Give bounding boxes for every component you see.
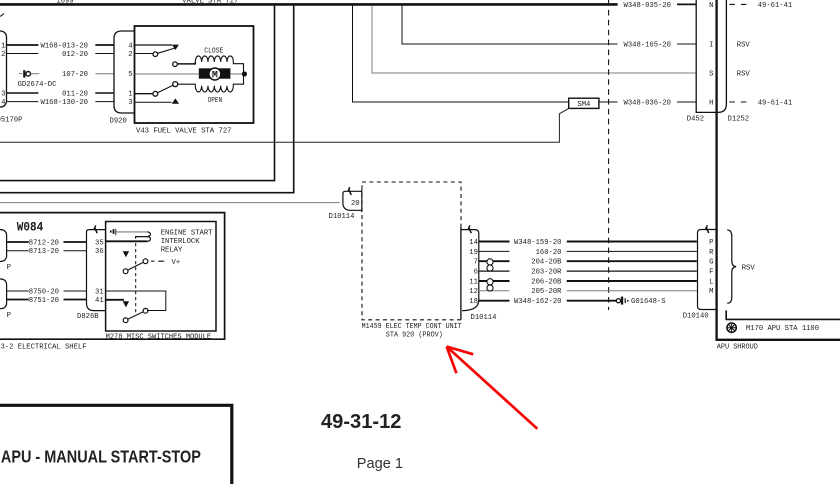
- svg-text:M278 MISC SWITCHES MODULE: M278 MISC SWITCHES MODULE: [106, 333, 212, 341]
- svg-text:H: H: [709, 99, 713, 107]
- svg-text:8712-20: 8712-20: [29, 239, 59, 247]
- svg-text:D1252: D1252: [728, 115, 750, 123]
- svg-text:D826B: D826B: [77, 313, 99, 321]
- svg-text:2: 2: [128, 51, 132, 59]
- svg-text:G01648-S: G01648-S: [631, 298, 666, 306]
- svg-text:19: 19: [469, 249, 478, 257]
- svg-text:107-20: 107-20: [62, 71, 88, 79]
- svg-text:V+: V+: [172, 259, 181, 267]
- svg-text:12: 12: [469, 288, 478, 296]
- svg-text:204-20B: 204-20B: [531, 259, 562, 267]
- svg-text:203-20R: 203-20R: [531, 269, 562, 277]
- svg-text:G: G: [709, 259, 713, 267]
- svg-text:SM4: SM4: [577, 101, 590, 109]
- svg-text:11: 11: [469, 278, 478, 286]
- svg-text:2: 2: [1, 51, 5, 59]
- svg-text:1: 1: [128, 90, 132, 98]
- svg-text:18: 18: [469, 298, 478, 306]
- svg-text:3: 3: [1, 90, 5, 98]
- svg-text:011-20: 011-20: [62, 90, 88, 98]
- svg-text:P: P: [7, 312, 11, 320]
- svg-text:ENGINE START: ENGINE START: [161, 229, 213, 237]
- svg-text:D10114: D10114: [329, 213, 355, 221]
- svg-text:205-20R: 205-20R: [531, 288, 562, 296]
- svg-text:W348-162-20: W348-162-20: [514, 298, 561, 306]
- svg-text:W168-013-20: W168-013-20: [41, 42, 88, 50]
- svg-text:41: 41: [95, 297, 104, 305]
- svg-text:M: M: [212, 71, 218, 82]
- svg-text:W168-130-20: W168-130-20: [41, 99, 88, 107]
- svg-text:012-20: 012-20: [62, 51, 88, 59]
- svg-text:CLOSE: CLOSE: [204, 47, 223, 55]
- svg-text:W348-165-20: W348-165-20: [624, 41, 671, 49]
- svg-text:7: 7: [474, 259, 478, 267]
- svg-text:D920: D920: [110, 118, 127, 126]
- svg-text:INTERLOCK: INTERLOCK: [161, 238, 201, 246]
- svg-text:D10140: D10140: [683, 312, 709, 320]
- svg-text:49-61-41: 49-61-41: [758, 99, 793, 107]
- svg-text:Page 1: Page 1: [357, 456, 403, 472]
- svg-text:F: F: [709, 269, 713, 277]
- svg-text:49-31-12: 49-31-12: [321, 411, 401, 433]
- svg-text:W348-159-20: W348-159-20: [514, 239, 561, 247]
- svg-text:35: 35: [95, 239, 104, 247]
- svg-text:P: P: [709, 239, 713, 247]
- svg-text:8751-20: 8751-20: [29, 297, 59, 305]
- svg-text:M170 APU STA 1100: M170 APU STA 1100: [746, 325, 819, 333]
- svg-text:P: P: [7, 264, 11, 272]
- svg-text:D10114: D10114: [471, 314, 497, 322]
- svg-text:5: 5: [128, 71, 132, 79]
- svg-text:OPEN: OPEN: [208, 97, 223, 105]
- svg-text:GD2674-DC: GD2674-DC: [18, 81, 58, 89]
- svg-text:M: M: [709, 288, 713, 296]
- svg-text:206-20B: 206-20B: [531, 278, 562, 286]
- svg-text:RSV: RSV: [737, 70, 751, 78]
- svg-text:160-20: 160-20: [536, 249, 562, 257]
- svg-text:STA 920 (PROV): STA 920 (PROV): [386, 332, 443, 340]
- svg-text:14: 14: [469, 239, 478, 247]
- svg-text:V43 FUEL VALVE STA 727: V43 FUEL VALVE STA 727: [136, 128, 232, 136]
- svg-text:M1459 ELEC TEMP CONT UNIT: M1459 ELEC TEMP CONT UNIT: [362, 323, 463, 331]
- svg-text:36: 36: [95, 248, 104, 256]
- svg-text:1: 1: [1, 42, 5, 50]
- svg-text:R: R: [709, 249, 714, 257]
- svg-text:APU SHROUD: APU SHROUD: [717, 344, 758, 352]
- svg-text:3: 3: [128, 99, 132, 107]
- svg-text:D5170P: D5170P: [0, 117, 22, 125]
- svg-text:6: 6: [474, 269, 478, 277]
- svg-text:8750-20: 8750-20: [29, 288, 59, 296]
- svg-text:RELAY: RELAY: [161, 247, 183, 255]
- svg-text:RSV: RSV: [737, 41, 751, 49]
- svg-text:W348-036-20: W348-036-20: [624, 99, 671, 107]
- svg-text:20: 20: [351, 200, 360, 208]
- svg-text:W084: W084: [17, 221, 44, 235]
- svg-text:31: 31: [95, 288, 104, 296]
- svg-text:S: S: [709, 70, 713, 78]
- svg-text:L: L: [709, 278, 713, 286]
- svg-text:D452: D452: [687, 115, 704, 123]
- svg-text:4: 4: [128, 42, 132, 50]
- svg-text:W348-035-20: W348-035-20: [624, 2, 671, 10]
- svg-text:N: N: [709, 2, 713, 10]
- svg-text:4: 4: [1, 99, 5, 107]
- svg-text:8713-20: 8713-20: [29, 248, 59, 256]
- svg-text:RSV: RSV: [742, 264, 756, 272]
- svg-text:49-61-41: 49-61-41: [758, 2, 793, 10]
- svg-text:I: I: [709, 41, 713, 49]
- svg-text:3-2 ELECTRICAL SHELF: 3-2 ELECTRICAL SHELF: [1, 344, 87, 352]
- svg-text:APU - MANUAL START-STOP: APU - MANUAL START-STOP: [1, 447, 201, 467]
